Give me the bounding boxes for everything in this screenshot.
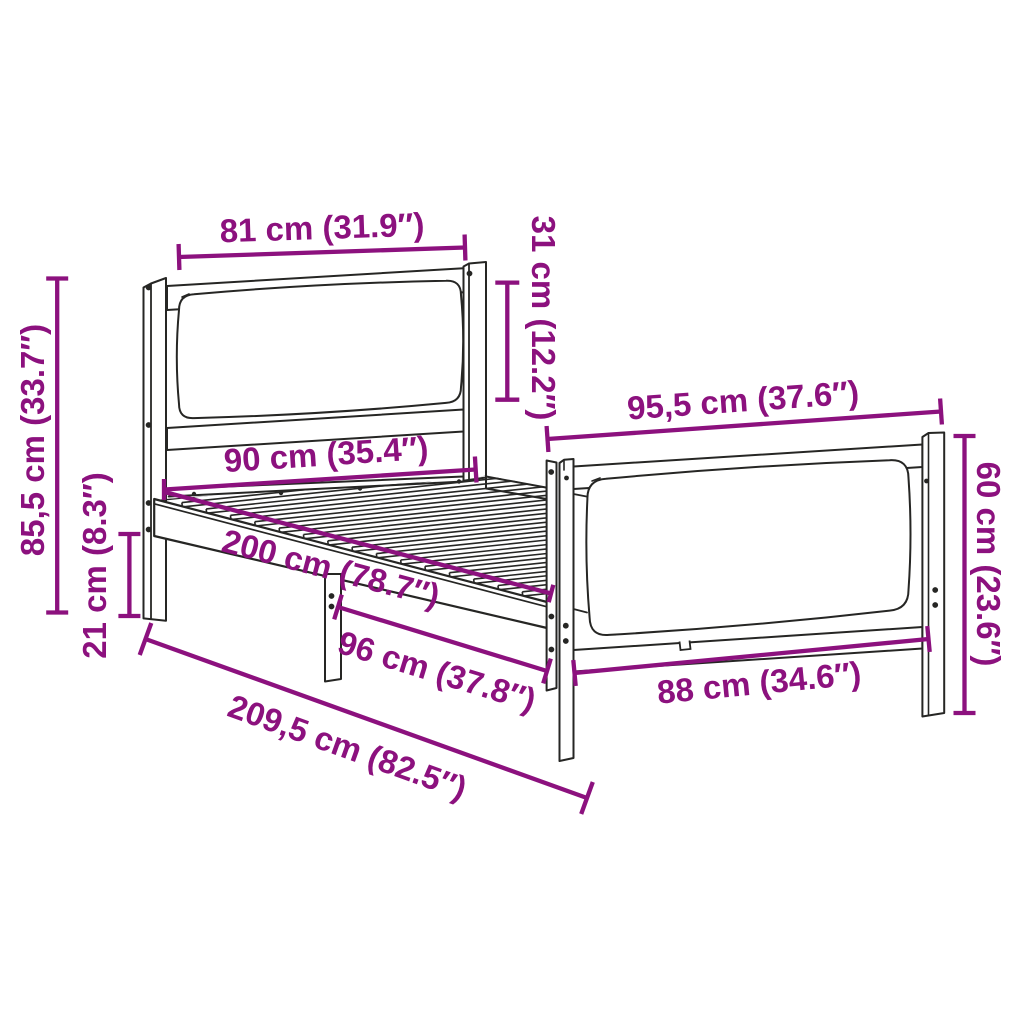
- svg-text:31 cm (12.2″): 31 cm (12.2″): [525, 216, 562, 421]
- svg-text:60 cm (23.6″): 60 cm (23.6″): [970, 462, 1007, 667]
- svg-text:85,5 cm (33.7″): 85,5 cm (33.7″): [14, 324, 51, 556]
- svg-text:21 cm (8.3″): 21 cm (8.3″): [76, 472, 113, 658]
- svg-text:81 cm (31.9″): 81 cm (31.9″): [219, 206, 425, 250]
